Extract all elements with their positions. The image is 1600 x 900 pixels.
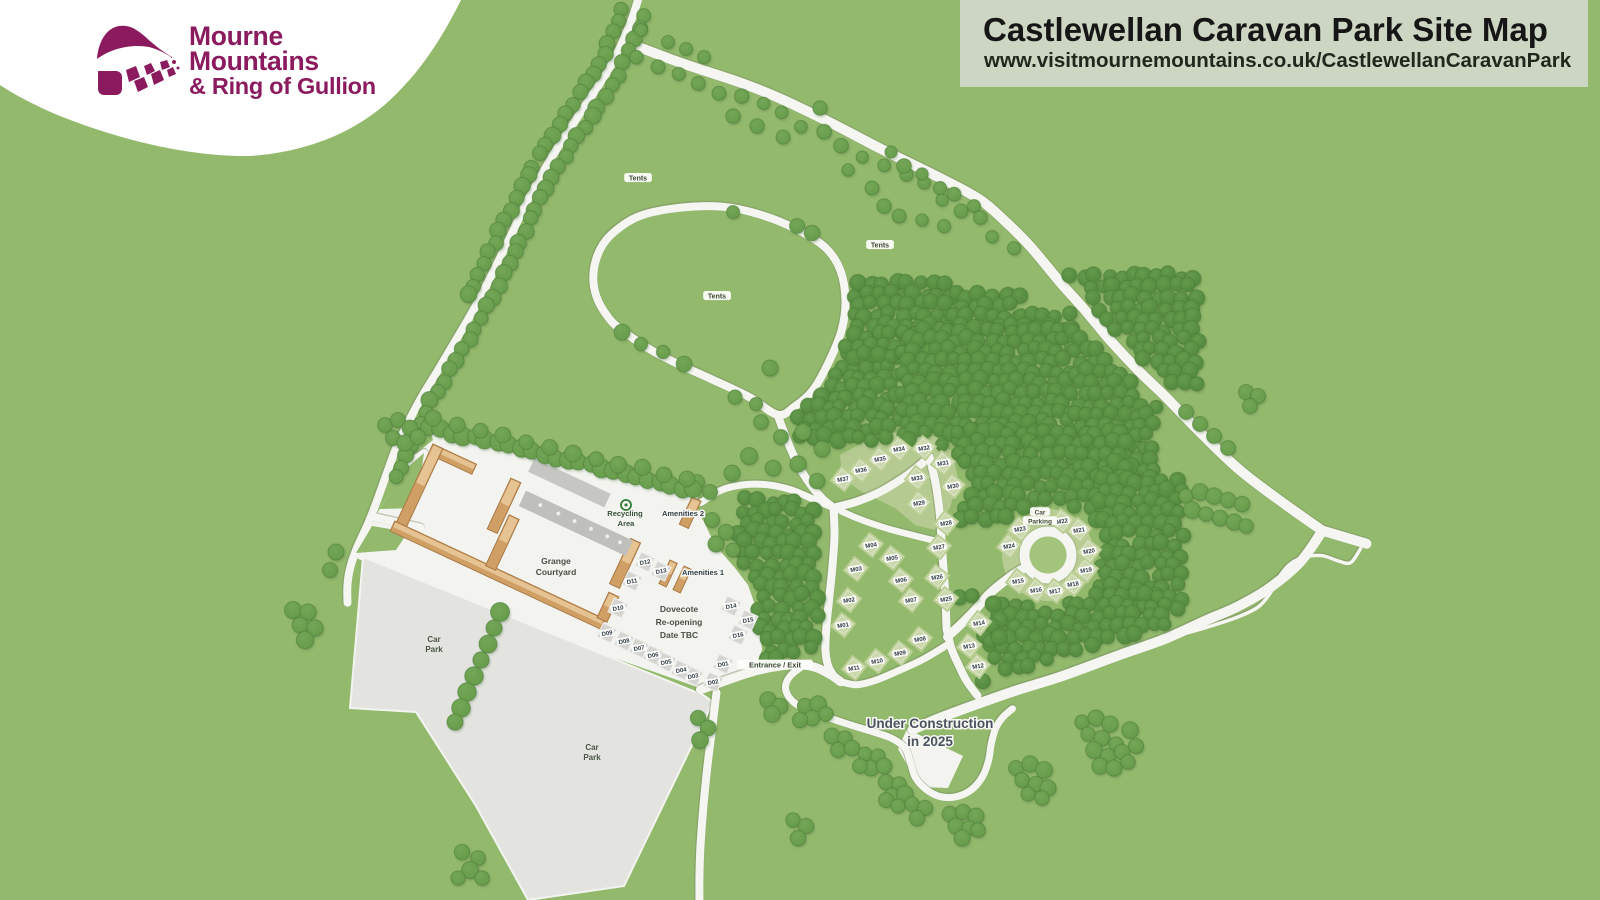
svg-text:Park: Park: [425, 645, 443, 654]
svg-text:Courtyard: Courtyard: [536, 567, 577, 577]
svg-text:Car: Car: [1035, 509, 1046, 516]
svg-text:Recycling: Recycling: [607, 509, 643, 518]
svg-text:Park: Park: [583, 753, 601, 762]
svg-text:Area: Area: [618, 519, 636, 528]
svg-text:Parking: Parking: [1028, 518, 1052, 525]
svg-text:Grange: Grange: [541, 556, 571, 566]
svg-text:& Ring of Gullion: & Ring of Gullion: [189, 73, 376, 99]
svg-text:Car: Car: [427, 635, 440, 644]
svg-text:Amenities 1: Amenities 1: [682, 568, 724, 577]
svg-text:Tents: Tents: [629, 176, 647, 183]
svg-text:Tents: Tents: [708, 294, 726, 301]
svg-text:www.visitmournemountains.co.uk: www.visitmournemountains.co.uk/Castlewel…: [983, 49, 1572, 72]
svg-text:Car: Car: [585, 743, 598, 752]
svg-text:Tents: Tents: [871, 243, 889, 250]
svg-text:Castlewellan Caravan Park Site: Castlewellan Caravan Park Site Map: [983, 11, 1548, 48]
svg-text:Entrance / Exit: Entrance / Exit: [749, 661, 802, 670]
svg-text:Under Construction: Under Construction: [867, 716, 994, 731]
svg-text:Mountains: Mountains: [189, 46, 319, 76]
svg-text:Dovecote: Dovecote: [660, 604, 699, 614]
svg-text:Date TBC: Date TBC: [660, 630, 698, 640]
svg-text:in 2025: in 2025: [907, 734, 953, 749]
svg-text:Re-opening: Re-opening: [656, 617, 703, 627]
svg-text:Amenities 2: Amenities 2: [662, 509, 704, 518]
